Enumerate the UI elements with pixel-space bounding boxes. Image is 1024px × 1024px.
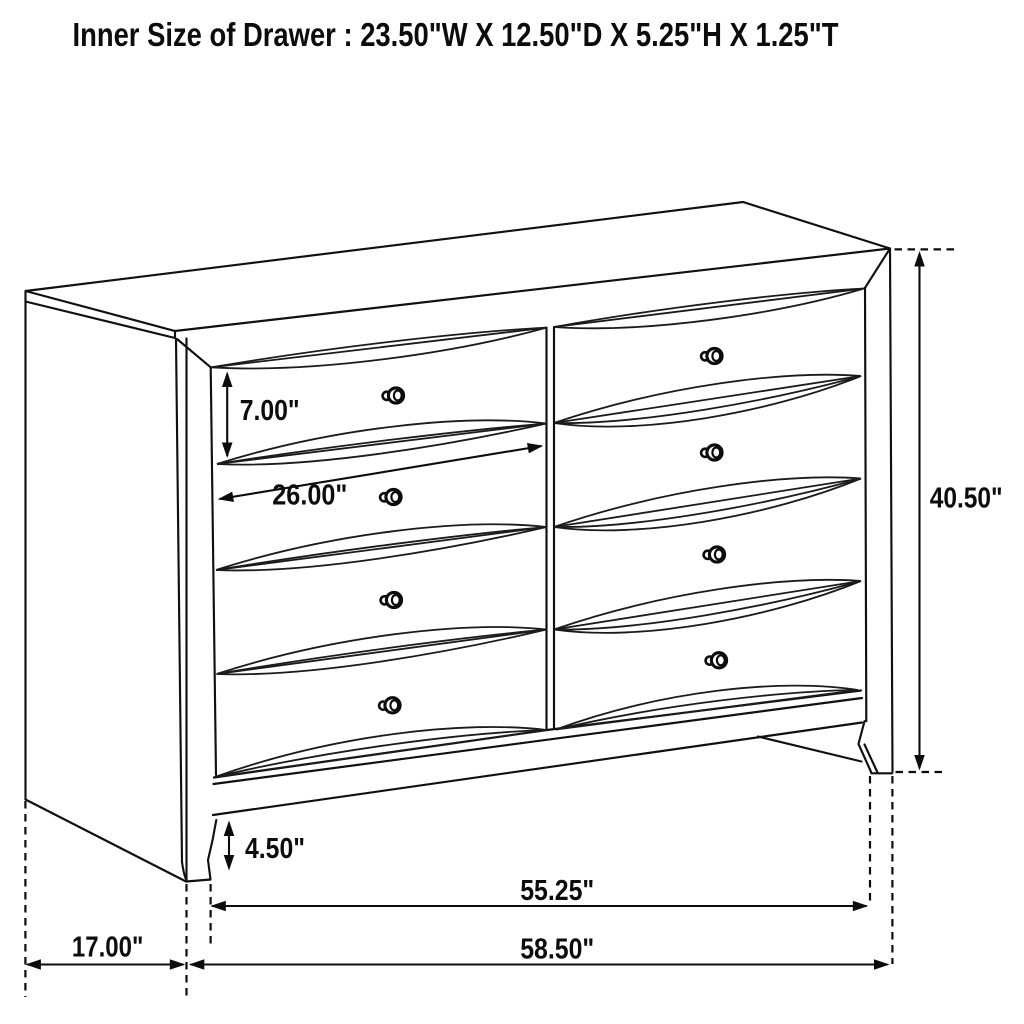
svg-text:26.00": 26.00" [272,480,347,512]
svg-text:55.25": 55.25" [520,875,594,907]
svg-text:4.50": 4.50" [245,833,305,865]
svg-text:40.50": 40.50" [930,483,1003,515]
svg-text:Inner Size of Drawer : 23.50"W: Inner Size of Drawer : 23.50"W X 12.50"D… [73,17,839,54]
svg-text:58.50": 58.50" [520,934,594,966]
svg-text:7.00": 7.00" [240,395,300,427]
svg-text:17.00": 17.00" [72,932,143,964]
